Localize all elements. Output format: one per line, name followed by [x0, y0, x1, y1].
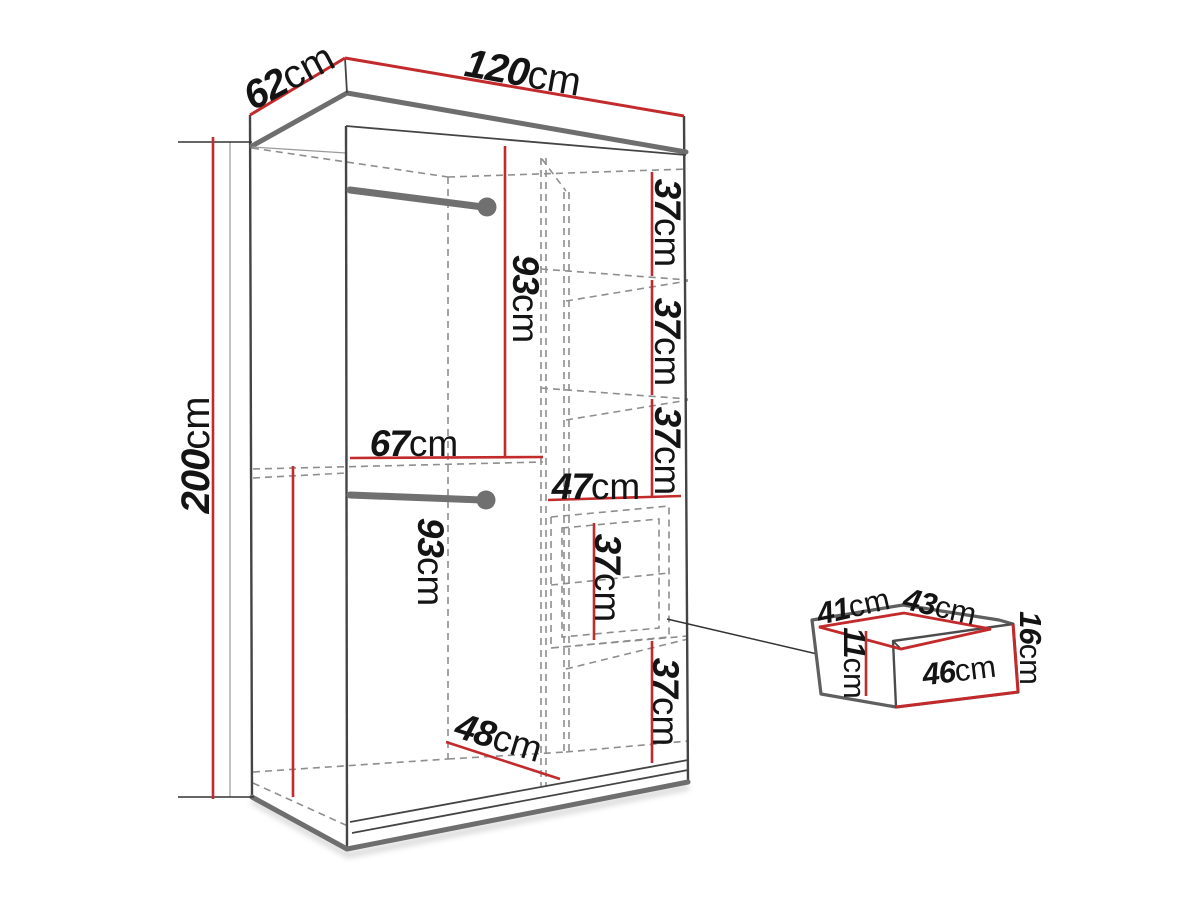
label-lower-hanging: 93cm	[411, 518, 452, 606]
label-drawer-front-height: 16cm	[1014, 611, 1049, 685]
wardrobe-dimension-diagram: 62cm 120cm 200cm 93cm 67cm 93cm 47cm 37c…	[0, 0, 1200, 900]
label-left-width: 67cm	[370, 423, 458, 464]
diagram-svg: 62cm 120cm 200cm 93cm 67cm 93cm 47cm 37c…	[0, 0, 1200, 900]
label-height: 200cm	[174, 396, 218, 514]
lower-rod-end-cap	[477, 491, 496, 510]
label-upper-hanging: 93cm	[506, 255, 547, 343]
label-bottom-shelf: 37cm	[646, 658, 687, 746]
drawer-leader-line	[667, 619, 830, 657]
label-shelf-3: 37cm	[648, 407, 689, 495]
label-shelf-1: 37cm	[648, 179, 689, 267]
label-shelf-width: 47cm	[551, 466, 640, 507]
label-shelf-2: 37cm	[648, 298, 689, 386]
upper-rod-end-cap	[478, 198, 497, 217]
label-drawer-inner-depth: 11cm	[838, 627, 873, 699]
lower-hanging-rod	[350, 495, 482, 500]
label-drawer-bay: 37cm	[588, 534, 629, 622]
left-front-vertical-edge	[346, 126, 347, 848]
left-back-vertical-edge	[250, 115, 252, 797]
